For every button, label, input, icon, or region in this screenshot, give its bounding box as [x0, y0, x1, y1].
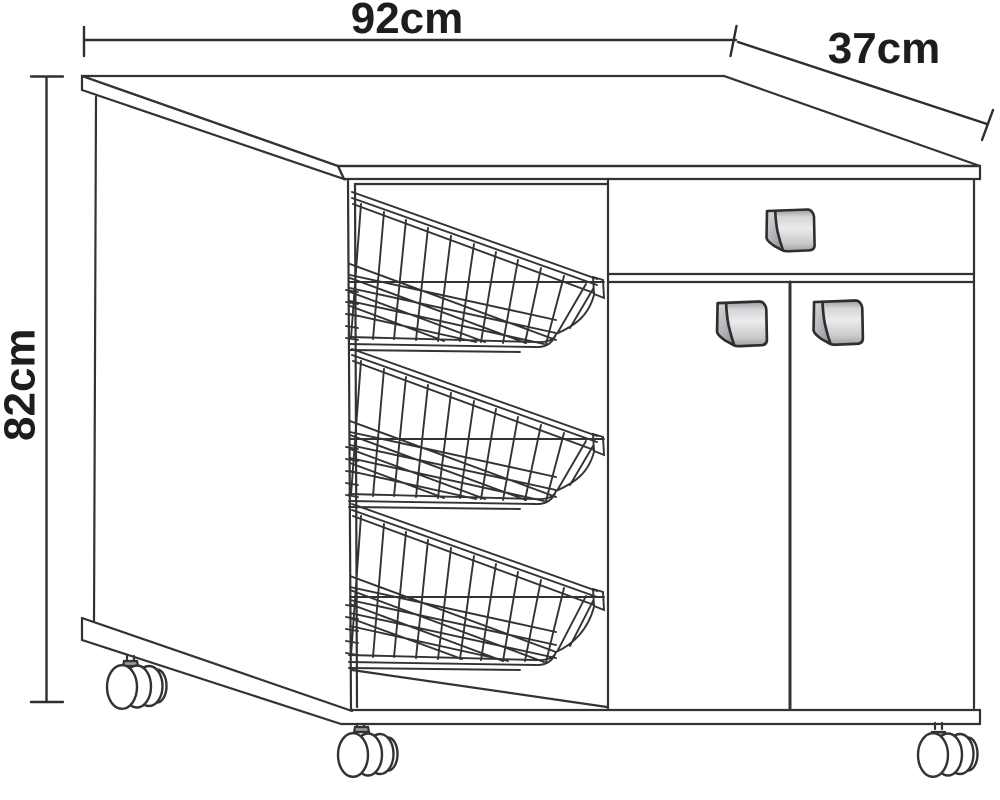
svg-text:92cm: 92cm	[351, 0, 464, 43]
svg-text:37cm: 37cm	[828, 24, 941, 73]
svg-text:82cm: 82cm	[0, 328, 45, 441]
